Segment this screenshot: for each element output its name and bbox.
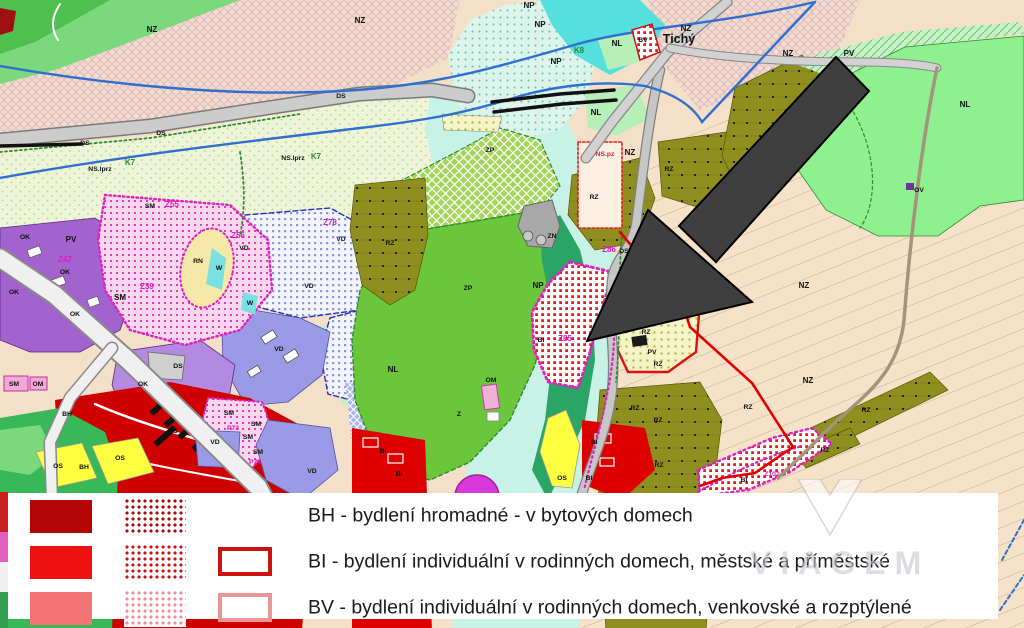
edge-strip-2 bbox=[0, 532, 8, 562]
map-label-vd: VD bbox=[336, 236, 346, 243]
black-building bbox=[631, 335, 647, 347]
white-bldg-mid bbox=[487, 412, 499, 421]
map-label-om: OM bbox=[486, 377, 497, 384]
rz-olive-j bbox=[442, 114, 502, 132]
map-label-bi: BI bbox=[396, 471, 403, 478]
map-label-rz: RZ bbox=[653, 417, 662, 424]
map-label-nz: NZ bbox=[799, 281, 810, 290]
map-label-rz: RZ bbox=[820, 447, 829, 454]
om-pink-mid bbox=[481, 384, 499, 410]
map-label-k7: K7 bbox=[311, 152, 322, 161]
map-label-z78: Z78 bbox=[323, 218, 337, 227]
map-label-rz: RZ bbox=[589, 194, 598, 201]
map-label-ok: OK bbox=[70, 311, 80, 318]
map-screenshot: NZNZNZNZNZNZNZPVPVPVNPNPNPNPK8K7K7NS.lpr… bbox=[0, 0, 1024, 628]
map-label-bi: BI bbox=[538, 337, 545, 344]
map-label-ns.pz: NS.pz bbox=[596, 151, 615, 158]
map-label-bv: BV bbox=[638, 37, 648, 44]
viagem-text-watermark: VIAGEM bbox=[750, 545, 930, 582]
map-label-w: W bbox=[216, 265, 223, 272]
edge-strip-4 bbox=[0, 592, 8, 628]
map-label-pv: PV bbox=[647, 349, 657, 356]
map-label-vd: VD bbox=[307, 468, 317, 475]
edge-strip-3 bbox=[0, 562, 8, 592]
legend-label-bv: BV - bydlení individuální v rodinných do… bbox=[308, 597, 912, 620]
map-label-nz: NZ bbox=[783, 49, 794, 58]
map-label-ok: OK bbox=[9, 289, 19, 296]
legend-swatch-dotted-bi bbox=[124, 544, 186, 581]
map-label-nl: NL bbox=[960, 100, 971, 109]
map-label-bh: BH bbox=[62, 411, 72, 418]
map-label-nz: NZ bbox=[355, 16, 366, 25]
map-label-pv: PV bbox=[844, 49, 855, 58]
map-label-rz: RZ bbox=[861, 407, 870, 414]
map-label-nz: NZ bbox=[803, 376, 814, 385]
map-label-pv: PV bbox=[66, 235, 77, 244]
legend-swatch-outline-bi bbox=[218, 547, 272, 576]
map-label-zp: ZP bbox=[486, 147, 495, 154]
map-label-rz: RZ bbox=[653, 361, 662, 368]
map-label-sm: SM bbox=[253, 449, 264, 456]
map-label-tichý: Tichý bbox=[663, 32, 695, 46]
map-label-np: NP bbox=[534, 20, 546, 29]
map-label-z39: Z39 bbox=[140, 282, 154, 291]
map-label-np: NP bbox=[550, 57, 562, 66]
map-label-os: OS bbox=[557, 475, 567, 482]
map-label-k8: K8 bbox=[574, 46, 585, 55]
legend-swatch-outline-bv bbox=[218, 593, 272, 622]
ov-icon bbox=[906, 183, 914, 190]
map-label-vd: VD bbox=[210, 439, 220, 446]
map-label-ns.lprz: NS.lprz bbox=[88, 166, 112, 173]
map-label-ok: OK bbox=[138, 381, 148, 388]
map-label-nz: NZ bbox=[147, 25, 158, 34]
map-label-np: NP bbox=[532, 281, 544, 290]
map-label-sm: SM bbox=[9, 381, 20, 388]
legend-swatch-solid-bi bbox=[30, 546, 92, 579]
map-label-k7: K7 bbox=[125, 158, 136, 167]
map-label-nl: NL bbox=[591, 108, 602, 117]
map-label-sm: SM bbox=[224, 410, 235, 417]
map-label-sm: SM bbox=[251, 421, 262, 428]
map-label-nz: NZ bbox=[625, 148, 636, 157]
legend-swatch-dotted-bv bbox=[124, 590, 186, 627]
map-label-os: OS bbox=[115, 455, 125, 462]
map-label-z85: Z85 bbox=[558, 334, 572, 343]
legend-swatch-solid-bv bbox=[30, 592, 92, 625]
map-label-z47: Z47 bbox=[58, 255, 72, 264]
map-label-bi: BI bbox=[591, 439, 598, 446]
map-label-ds: DS bbox=[173, 363, 183, 370]
map-label-ok: OK bbox=[60, 269, 70, 276]
map-label-rz: RZ bbox=[743, 404, 752, 411]
edge-strip-1 bbox=[0, 492, 8, 532]
map-label-z55: Z55 bbox=[165, 200, 179, 209]
map-label-zn: ZN bbox=[547, 233, 556, 240]
map-label-p74: P74 bbox=[249, 459, 261, 466]
map-label-bh: BH bbox=[79, 464, 89, 471]
map-label-w: W bbox=[247, 300, 254, 307]
legend-row-bv: BV - bydlení individuální v rodinných do… bbox=[8, 588, 998, 628]
map-label-os: OS bbox=[53, 463, 63, 470]
map-label-z: Z bbox=[457, 411, 461, 418]
legend-swatch-dotted-bh bbox=[124, 498, 186, 535]
map-label-ds: DS bbox=[336, 93, 346, 100]
map-label-sm: SM bbox=[243, 434, 254, 441]
map-label-sm: SM bbox=[145, 203, 156, 210]
map-label-ds: DS bbox=[156, 130, 166, 137]
plant-tank-2 bbox=[536, 235, 546, 245]
map-label-np: NP bbox=[523, 1, 535, 10]
map-label-bi: BI bbox=[586, 475, 593, 482]
map-label-vd: VD bbox=[239, 245, 249, 252]
map-label-rz: RZ bbox=[664, 166, 673, 173]
map-label-sm: SM bbox=[114, 293, 126, 302]
map-label-rz: RZ bbox=[630, 405, 639, 412]
map-label-z102: Z102 bbox=[764, 471, 780, 478]
map-label-zp: ZP bbox=[464, 285, 473, 292]
map-label-rz: RZ bbox=[641, 329, 650, 336]
map-label-vd: VD bbox=[274, 346, 284, 353]
map-label-om: OM bbox=[33, 381, 44, 388]
map-label-rn: RN bbox=[193, 258, 203, 265]
legend-label-bh: BH - bydlení hromadné - v bytových domec… bbox=[308, 505, 693, 528]
map-label-bi: BI bbox=[741, 477, 748, 484]
map-label-ns.lprz: NS.lprz bbox=[281, 155, 305, 162]
map-label-bi: BI bbox=[380, 448, 387, 455]
map-label-p73: P73 bbox=[227, 425, 239, 432]
plant-tank-1 bbox=[523, 231, 533, 241]
map-label-ok: OK bbox=[20, 234, 30, 241]
proposed-road-3 bbox=[0, 144, 82, 146]
map-label-vd: VD bbox=[304, 283, 314, 290]
map-label-nl: NL bbox=[388, 365, 399, 374]
legend-swatch-solid-bh bbox=[30, 500, 92, 533]
map-label-rz: RZ bbox=[385, 240, 394, 247]
map-label-nl: NL bbox=[612, 39, 623, 48]
map-label-z56: Z56 bbox=[231, 231, 245, 240]
map-label-rz: RZ bbox=[654, 462, 663, 469]
map-label-z86: Z86 bbox=[602, 245, 616, 254]
map-label-ov: OV bbox=[914, 187, 924, 194]
map-label-ds: DS bbox=[168, 428, 178, 435]
viagem-gem-icon bbox=[798, 479, 862, 535]
viagem-logo-watermark bbox=[798, 479, 862, 542]
map-label-ds: DS bbox=[80, 140, 90, 147]
